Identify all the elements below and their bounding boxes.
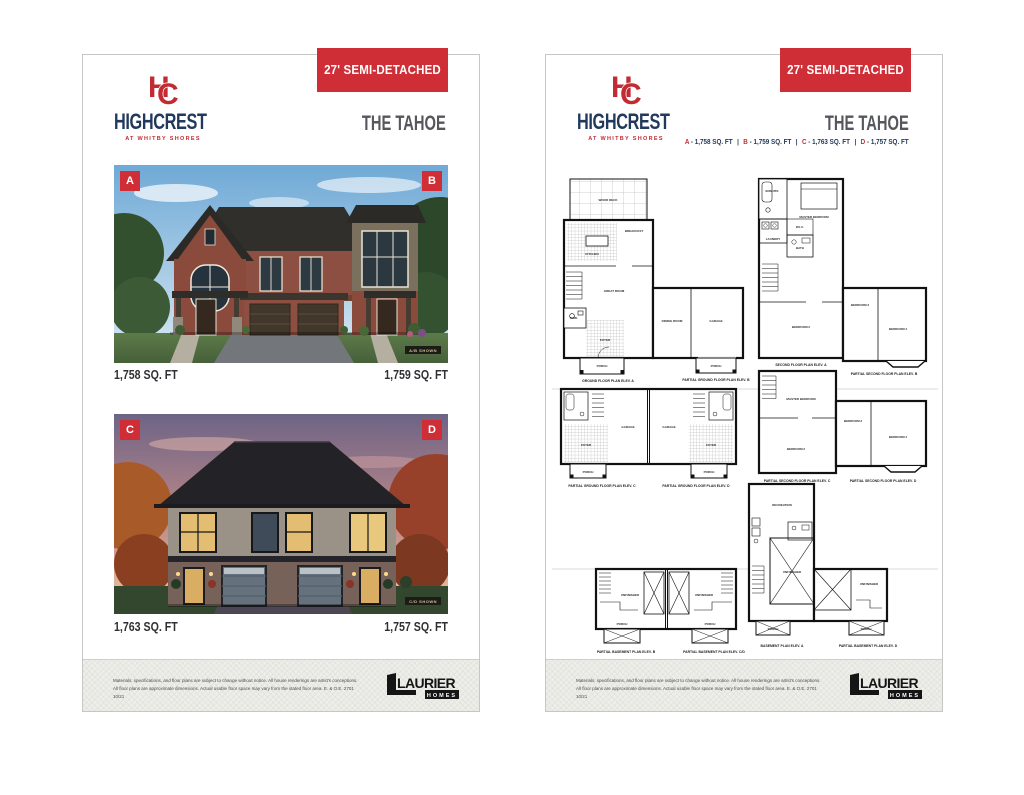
disclaimer-text: Materials, specifications, and floor pla…	[576, 677, 821, 701]
disclaimer-line1: Materials, specifications, and floor pla…	[113, 677, 358, 685]
hc-monogram-icon: H C	[610, 70, 644, 110]
sqft-legend: A - 1,758 SQ. FT | B - 1,759 SQ. FT | C …	[685, 139, 909, 146]
laurier-name: LAURIER	[397, 675, 456, 691]
laurier-homes-logo: LAURIER HOMES	[846, 670, 928, 702]
room-label: FOYER	[581, 443, 592, 447]
brochure-canvas: 27' SEMI-DETACHED H C HIGHCREST AT WHITB…	[0, 0, 1024, 795]
brand-tagline: AT WHITBY SHORES	[570, 136, 682, 142]
room-label: ENSUITE	[765, 189, 778, 193]
floor-plans-drawing: WOOD DECK BREAKFAST KITCHEN GREAT ROOM P…	[546, 170, 944, 662]
house-ab-illustration	[114, 165, 448, 363]
sqft-row-ab: 1,758 SQ. FT 1,759 SQ. FT	[114, 368, 448, 383]
brand-name: HIGHCREST	[577, 109, 670, 135]
banner-label: 27' SEMI-DETACHED	[787, 63, 904, 77]
plan-ground-floor: WOOD DECK BREAKFAST KITCHEN GREAT ROOM P…	[564, 179, 750, 383]
elevation-badge-b: B	[422, 171, 442, 191]
plan-partial-second: MASTER BEDROOM BEDROOM 2 BEDROOM 3 BEDRO…	[759, 371, 926, 483]
room-label: BEDROOM 3	[844, 419, 863, 423]
sqft-elevation-b: 1,759 SQ. FT	[384, 368, 448, 382]
legend-value-a: 1,758 SQ. FT	[695, 139, 733, 146]
plan-basement-partial: UNFINISHED UNFINISHED PORCH PORCH PARTIA…	[596, 569, 745, 654]
footer-right: Materials, specifications, and floor pla…	[546, 659, 942, 711]
elevation-badge-d: D	[422, 420, 442, 440]
footer-left: Materials, specifications, and floor pla…	[83, 659, 479, 711]
model-name: THE TAHOE	[825, 112, 909, 136]
room-label: PORCH	[711, 364, 722, 368]
legend-value-b: 1,759 SQ. FT	[754, 139, 792, 146]
laurier-name: LAURIER	[860, 675, 919, 691]
elevation-badge-a: A	[120, 171, 140, 191]
plan-caption: BASEMENT PLAN ELEV. A	[761, 644, 804, 648]
room-label: UNFINISHED	[621, 593, 640, 597]
laurier-homes-logo: LAURIER HOMES	[383, 670, 465, 702]
room-label: BEDROOM 4	[889, 435, 908, 439]
room-label: PORCH	[705, 622, 716, 626]
plan-caption: PARTIAL SECOND FLOOR PLAN ELEV. C	[764, 479, 831, 483]
plan-caption: PARTIAL BASEMENT PLAN ELEV. D	[839, 644, 898, 648]
disclaimer-line1: Materials, specifications, and floor pla…	[576, 677, 821, 685]
banner-label: 27' SEMI-DETACHED	[324, 63, 441, 77]
elevation-badge-c: C	[120, 420, 140, 440]
plan-basement: RECREATION UNFINISHED UNFINISHED PORCH P…	[749, 484, 898, 648]
room-label: MASTER BEDROOM	[786, 397, 816, 401]
room-label: PWD.	[570, 316, 578, 320]
room-label: BEDROOM 2	[787, 447, 806, 451]
room-label: UNFINISHED	[860, 582, 879, 586]
room-label: FOYER	[706, 443, 717, 447]
room-label: BREAKFAST	[625, 229, 644, 233]
left-page: 27' SEMI-DETACHED H C HIGHCREST AT WHITB…	[82, 54, 480, 712]
plan-caption: PARTIAL SECOND FLOOR PLAN ELEV. D	[850, 479, 917, 483]
plan-caption: PARTIAL GROUND FLOOR PLAN ELEV. D	[662, 484, 730, 488]
sqft-elevation-c: 1,763 SQ. FT	[114, 620, 178, 634]
disclaimer-line2: All floor plans are approximate dimensio…	[113, 685, 358, 701]
right-page: 27' SEMI-DETACHED H C HIGHCREST AT WHITB…	[545, 54, 943, 712]
room-label: BEDROOM 3	[851, 303, 870, 307]
banner-left: 27' SEMI-DETACHED	[317, 48, 448, 92]
plan-caption: PARTIAL BASEMENT PLAN ELEV. C/D	[683, 650, 745, 654]
rendering-elevation-ab: A B A/B SHOWN	[114, 165, 448, 363]
legend-value-d: 1,757 SQ. FT	[871, 139, 909, 146]
room-label: UNFINISHED	[695, 593, 714, 597]
plan-caption: GROUND FLOOR PLAN ELEV. A	[582, 379, 634, 383]
laurier-sub: HOMES	[427, 693, 457, 699]
room-label: PORCH	[583, 470, 594, 474]
plan-caption: PARTIAL GROUND FLOOR PLAN ELEV. B	[682, 378, 750, 382]
sqft-elevation-d: 1,757 SQ. FT	[384, 620, 448, 634]
room-label: FOYER	[600, 338, 611, 342]
laurier-sub: HOMES	[890, 693, 920, 699]
room-label: PORCH	[768, 627, 779, 631]
room-label: WOOD DECK	[599, 198, 619, 202]
room-label: PORCH	[597, 364, 608, 368]
shown-tag-ab: A/B SHOWN	[405, 346, 441, 354]
room-label: UNFINISHED	[783, 570, 802, 574]
room-label: PORCH	[617, 622, 628, 626]
banner-right: 27' SEMI-DETACHED	[780, 48, 911, 92]
model-name: THE TAHOE	[362, 112, 446, 136]
room-label: GARAGE	[709, 319, 722, 323]
brand-name: HIGHCREST	[114, 109, 207, 135]
shown-tag-cd: C/D SHOWN	[405, 597, 441, 605]
plan-caption: SECOND FLOOR PLAN ELEV. A	[775, 363, 827, 367]
brand-tagline: AT WHITBY SHORES	[107, 136, 219, 142]
monogram-c: C	[157, 78, 179, 110]
plan-caption: PARTIAL SECOND FLOOR PLAN ELEV. B	[851, 372, 918, 376]
room-label: BEDROOM 2	[792, 325, 811, 329]
disclaimer-text: Materials, specifications, and floor pla…	[113, 677, 358, 701]
legend-value-c: 1,763 SQ. FT	[812, 139, 850, 146]
room-label: RECREATION	[772, 503, 792, 507]
room-label: BEDROOM 4	[889, 327, 908, 331]
plan-second-floor: MASTER BEDROOM ENSUITE W.I.C. LAUNDRY BA…	[759, 179, 926, 376]
hc-monogram-icon: H C	[147, 70, 181, 110]
room-label: DINING ROOM	[662, 319, 683, 323]
sqft-elevation-a: 1,758 SQ. FT	[114, 368, 178, 382]
room-label: LAUNDRY	[766, 237, 781, 241]
plan-caption: PARTIAL BASEMENT PLAN ELEV. B	[597, 650, 656, 654]
room-label: BATH	[796, 246, 804, 250]
room-label: GARAGE	[621, 425, 634, 429]
monogram-c: C	[620, 78, 642, 110]
plan-caption: PARTIAL GROUND FLOOR PLAN ELEV. C	[568, 484, 636, 488]
sqft-row-cd: 1,763 SQ. FT 1,757 SQ. FT	[114, 620, 448, 635]
plan-partial-ground: GARAGE GARAGE FOYER FOYER PORCH PORCH PA…	[561, 389, 736, 488]
rendering-elevation-cd: C D C/D SHOWN	[114, 414, 448, 614]
room-label: GREAT ROOM	[604, 289, 625, 293]
room-label: GARAGE	[662, 425, 675, 429]
room-label: PORCH	[861, 627, 872, 631]
room-label: W.I.C.	[796, 225, 804, 229]
room-label: MASTER BEDROOM	[799, 215, 829, 219]
disclaimer-line2: All floor plans are approximate dimensio…	[576, 685, 821, 701]
house-cd-illustration	[114, 414, 448, 614]
room-label: KITCHEN	[585, 252, 598, 256]
room-label: PORCH	[704, 470, 715, 474]
